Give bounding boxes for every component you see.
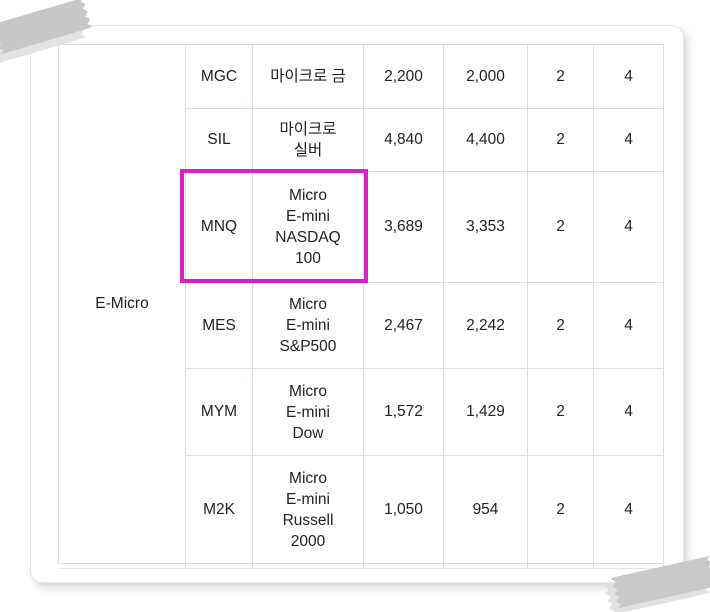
value-cell: 2	[528, 109, 594, 172]
name-cell: Micro E-mini NASDAQ 100	[253, 172, 364, 283]
value-cell: 2	[528, 283, 594, 369]
value-cell: 4,840	[364, 109, 444, 172]
margin-table: E-Micro MGC 마이크로 금 2,200 2,000 2 4 SIL 마…	[58, 44, 664, 569]
value-cell: 3,689	[364, 172, 444, 283]
partial-cell	[59, 564, 186, 569]
value-cell: 2,000	[444, 45, 528, 109]
partial-cell	[253, 564, 364, 569]
code-cell: MYM	[186, 369, 253, 456]
code-cell: SIL	[186, 109, 253, 172]
table-row: E-Micro MGC 마이크로 금 2,200 2,000 2 4	[59, 45, 664, 109]
partial-cell	[528, 564, 594, 569]
code-cell: M2K	[186, 456, 253, 564]
page: E-Micro MGC 마이크로 금 2,200 2,000 2 4 SIL 마…	[0, 0, 710, 612]
code-cell: MNQ	[186, 172, 253, 283]
partial-cell	[444, 564, 528, 569]
name-cell: 마이크로 금	[253, 45, 364, 109]
partial-cell	[364, 564, 444, 569]
value-cell: 1,050	[364, 456, 444, 564]
value-cell: 1,429	[444, 369, 528, 456]
value-cell: 4	[594, 109, 664, 172]
value-cell: 4	[594, 172, 664, 283]
name-cell: Micro E-mini Russell 2000	[253, 456, 364, 564]
code-cell: MGC	[186, 45, 253, 109]
value-cell: 4	[594, 369, 664, 456]
table-row-partial	[59, 564, 664, 569]
value-cell: 2	[528, 369, 594, 456]
value-cell: 2,467	[364, 283, 444, 369]
value-cell: 954	[444, 456, 528, 564]
value-cell: 4	[594, 45, 664, 109]
value-cell: 1,572	[364, 369, 444, 456]
name-cell: 마이크로 실버	[253, 109, 364, 172]
value-cell: 4,400	[444, 109, 528, 172]
value-cell: 2,242	[444, 283, 528, 369]
value-cell: 3,353	[444, 172, 528, 283]
group-label-cell: E-Micro	[59, 45, 186, 564]
value-cell: 2	[528, 456, 594, 564]
value-cell: 4	[594, 283, 664, 369]
value-cell: 2	[528, 45, 594, 109]
partial-cell	[594, 564, 664, 569]
value-cell: 2	[528, 172, 594, 283]
name-cell: Micro E-mini Dow	[253, 369, 364, 456]
code-cell: MES	[186, 283, 253, 369]
value-cell: 2,200	[364, 45, 444, 109]
partial-cell	[186, 564, 253, 569]
value-cell: 4	[594, 456, 664, 564]
name-cell: Micro E-mini S&P500	[253, 283, 364, 369]
